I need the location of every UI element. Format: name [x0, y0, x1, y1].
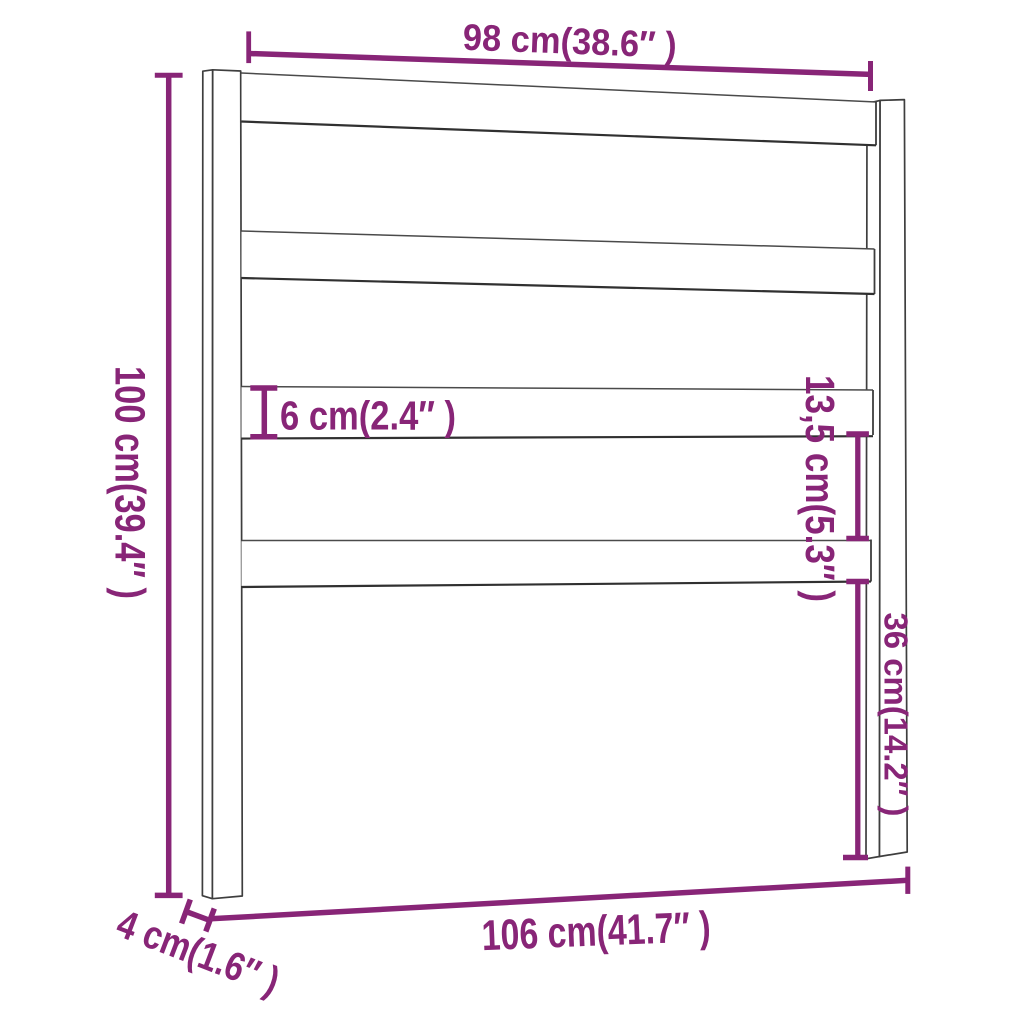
svg-text:36 cm(14.2″ ): 36 cm(14.2″ ) [878, 613, 915, 817]
svg-text:6 cm(2.4″ ): 6 cm(2.4″ ) [280, 393, 456, 439]
svg-text:100 cm(39.4″ ): 100 cm(39.4″ ) [106, 366, 154, 599]
svg-text:106 cm(41.7″ ): 106 cm(41.7″ ) [481, 903, 712, 960]
svg-text:98 cm(38.6″ ): 98 cm(38.6″ ) [462, 17, 677, 66]
svg-text:13,5 cm(5.3″ ): 13,5 cm(5.3″ ) [797, 375, 843, 602]
